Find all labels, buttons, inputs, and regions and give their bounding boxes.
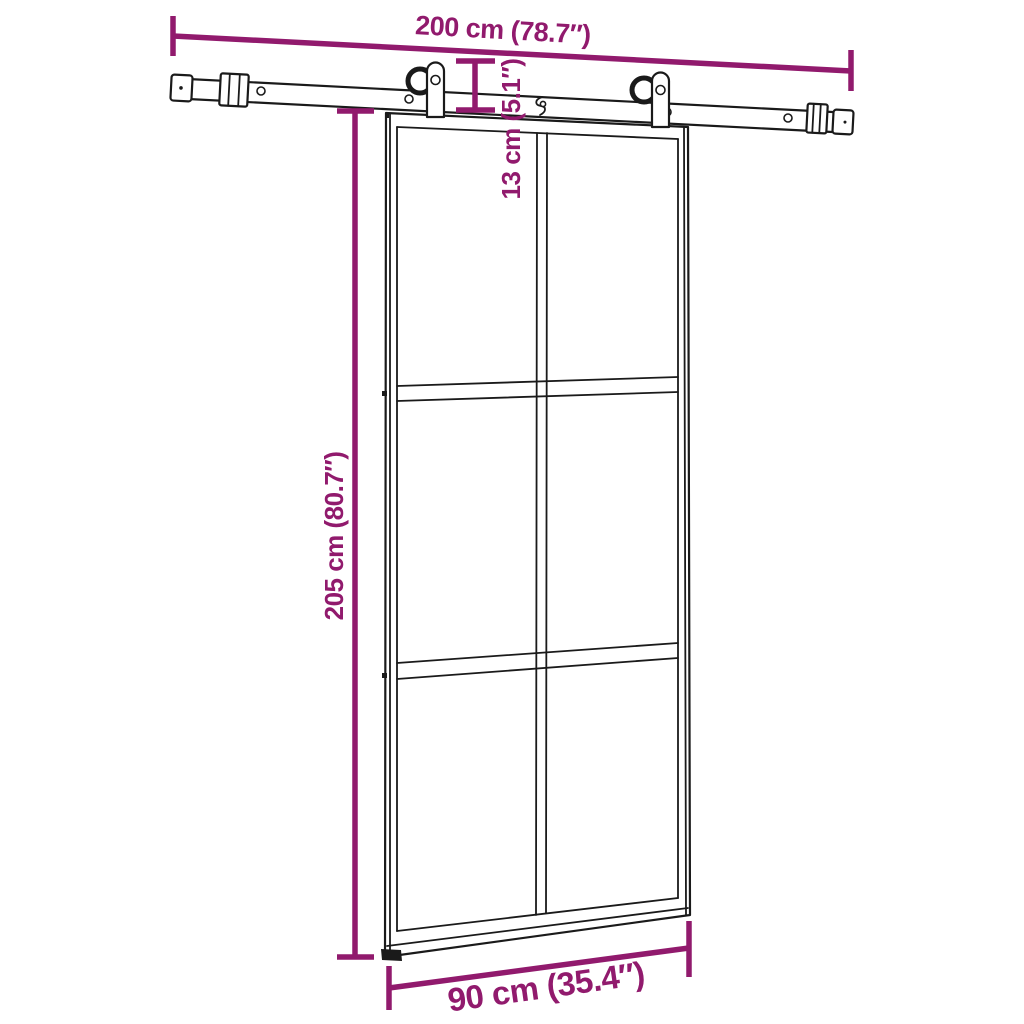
frame-screw	[382, 391, 387, 396]
rail-right-stopper	[806, 103, 827, 133]
door-height-label: 205 cm (80.7″)	[319, 452, 349, 621]
rail-hole	[784, 114, 792, 122]
rail-right-end-cap	[832, 109, 853, 134]
dimension-door-height: 205 cm (80.7″)	[319, 111, 374, 957]
frame-screw	[385, 113, 389, 118]
rail-width-label: 200 cm (78.7″)	[414, 10, 591, 50]
rail-left-end-cap	[170, 74, 192, 101]
dimension-diagram-svg: 200 cm (78.7″) 13 cm (5.1″) 205 cm (80.7…	[0, 0, 1024, 1024]
roller-strap	[427, 63, 444, 117]
door-width-label: 90 cm (35.4″)	[445, 954, 646, 1018]
rail-left-stopper	[219, 73, 249, 106]
glass-door	[381, 113, 690, 961]
floor-guide	[381, 949, 402, 961]
rail-hole	[405, 95, 413, 103]
rail-hole	[257, 87, 265, 95]
product-dimension-diagram: 200 cm (78.7″) 13 cm (5.1″) 205 cm (80.7…	[0, 0, 1024, 1024]
hanger-height-label: 13 cm (5.1″)	[496, 59, 526, 200]
frame-screw	[382, 673, 387, 678]
roller-strap	[652, 73, 669, 127]
roller-bolt	[656, 86, 665, 95]
roller-bolt	[431, 76, 440, 85]
